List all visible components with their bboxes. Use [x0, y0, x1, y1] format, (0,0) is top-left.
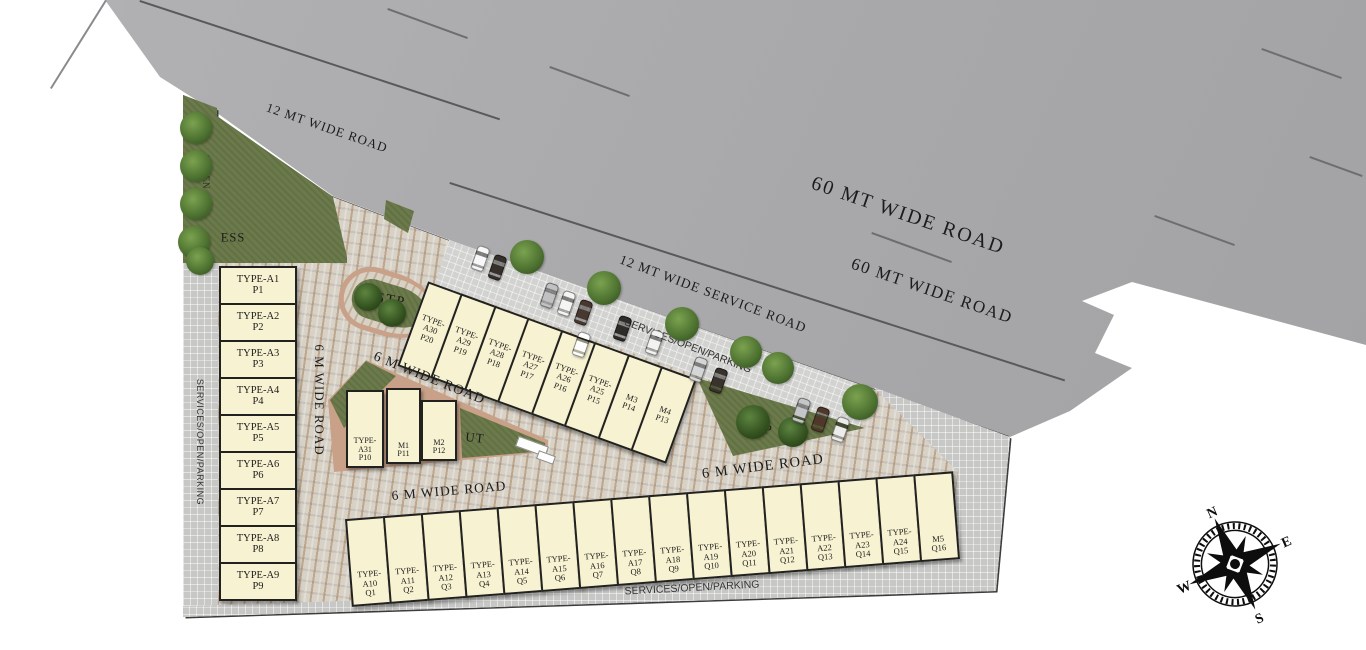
road-label-6m-vertical: 6 M WIDE ROAD	[311, 344, 327, 455]
compass-rose-icon: N E S W	[1170, 500, 1300, 630]
tree-icon	[762, 352, 794, 384]
tree-icon	[730, 336, 762, 368]
plot: TYPE-A5P5	[219, 414, 297, 454]
plot: M1P11	[386, 388, 421, 464]
tree-icon	[736, 405, 770, 439]
ut-label: UT	[465, 429, 486, 447]
tree-icon	[180, 150, 212, 182]
plot: M2P12	[421, 400, 457, 461]
plot: TYPE-A31P10	[346, 390, 384, 468]
plot: TYPE-A4P4	[219, 377, 297, 417]
compass-south-label: S	[1253, 611, 1266, 628]
services-label-left: SERVICES/OPEN/PARKING	[195, 379, 205, 505]
plot: TYPE-A3P3	[219, 340, 297, 380]
tree-icon	[180, 112, 212, 144]
plot: TYPE-A1P1	[219, 266, 297, 306]
ess-label: ESS	[221, 231, 246, 246]
compass-east-label: E	[1279, 534, 1294, 552]
plot: TYPE-A6P6	[219, 451, 297, 491]
plot: TYPE-A9P9	[219, 562, 297, 602]
tree-icon	[587, 271, 621, 305]
tree-icon	[186, 247, 214, 275]
tree-icon	[665, 307, 699, 341]
compass-west-label: W	[1175, 578, 1194, 597]
plot: TYPE-A8P8	[219, 525, 297, 565]
tree-icon	[354, 283, 382, 311]
site-plan-canvas: TYPE-A1P1TYPE-A2P2TYPE-A3P3TYPE-A4P4TYPE…	[0, 0, 1366, 650]
compass-north-label: N	[1205, 504, 1220, 522]
tree-icon	[842, 384, 878, 420]
plot-column-left: TYPE-A1P1TYPE-A2P2TYPE-A3P3TYPE-A4P4TYPE…	[219, 268, 297, 601]
plot: M5Q16	[913, 471, 960, 562]
road-edge-line	[50, 0, 106, 89]
tree-icon	[378, 299, 406, 327]
tree-icon	[510, 240, 544, 274]
plot: TYPE-A2P2	[219, 303, 297, 343]
tree-icon	[180, 188, 212, 220]
plot: TYPE-A7P7	[219, 488, 297, 528]
